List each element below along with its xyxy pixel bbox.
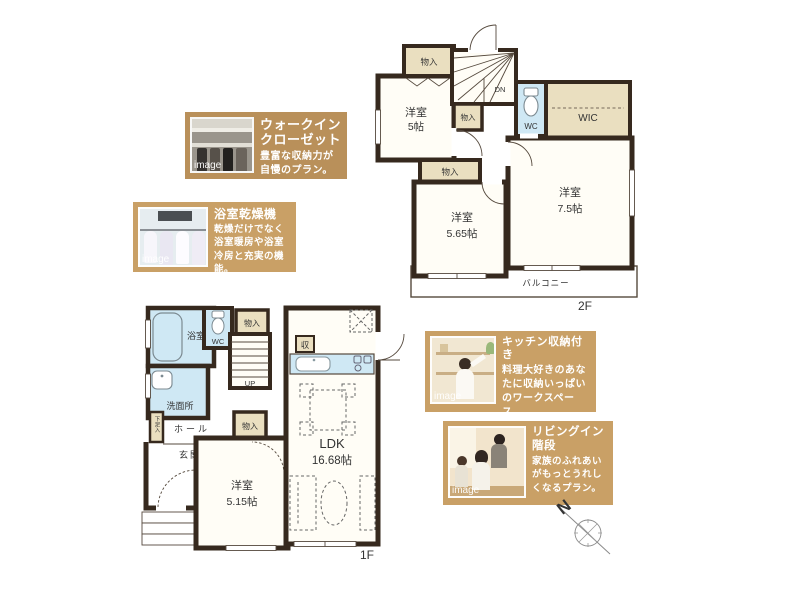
stairs-2f: DN xyxy=(452,25,516,104)
svg-text:WIC: WIC xyxy=(578,113,597,124)
photo-art xyxy=(192,231,205,265)
photo-art xyxy=(440,344,448,352)
toilet-icon xyxy=(524,88,538,116)
feature-desc: 乾燥だけでなく浴室暖房や浴室冷房と充実の機能。 xyxy=(214,223,291,276)
svg-text:洋室: 洋室 xyxy=(405,105,427,119)
image-watermark: image xyxy=(142,254,169,265)
stair-door-gap xyxy=(468,47,498,53)
stairs-dn-label: DN xyxy=(495,85,506,94)
svg-text:洋室: 洋室 xyxy=(559,185,581,199)
feature-desc: 家族のふれあいがもっとうれしくなるプラン。 xyxy=(532,455,608,495)
room-wc-2f: WC xyxy=(516,82,546,136)
image-watermark: image xyxy=(452,485,479,496)
photo-art xyxy=(236,148,247,173)
feature-box-walk-in-closet: image ウォークインクローゼット 豊富な収納力が自慢のプラン。 xyxy=(185,112,347,179)
compass-north-label: N xyxy=(553,496,574,519)
floor-label-2f: 2F xyxy=(578,299,592,313)
svg-text:WC: WC xyxy=(212,337,225,346)
photo-art xyxy=(192,128,252,132)
shoe-cabinet: 下足入 xyxy=(150,412,163,442)
svg-text:WC: WC xyxy=(524,122,538,131)
floor-plan-2f: バルコニー 洋室 5帖 物入 DN xyxy=(374,20,646,314)
closet-1f-top: 物入 xyxy=(236,310,268,334)
photo-art xyxy=(455,465,468,487)
photo-art xyxy=(176,231,189,264)
room-bedroom-515: 洋室 5.15帖 xyxy=(196,438,288,548)
svg-text:7.5帖: 7.5帖 xyxy=(557,202,583,215)
stairs-up-label: UP xyxy=(245,379,255,388)
feature-title: キッチン収納付き xyxy=(502,336,591,362)
photo-art xyxy=(223,148,233,172)
svg-text:洋室: 洋室 xyxy=(231,478,253,492)
svg-text:16.68帖: 16.68帖 xyxy=(312,453,352,467)
porch-steps xyxy=(142,512,196,545)
svg-text:LDK: LDK xyxy=(319,436,345,451)
svg-text:物入: 物入 xyxy=(420,57,438,67)
svg-text:物入: 物入 xyxy=(242,421,258,431)
room-wic: WIC xyxy=(546,82,630,138)
room-bedroom-565: 洋室 5.65帖 xyxy=(414,182,506,276)
feature-desc: 料理大好きのあなたに収納いっぱいのワークスペース。 xyxy=(502,364,591,420)
feature-photo-kitchen: image xyxy=(430,336,496,404)
feature-photo-laundry: image xyxy=(138,207,208,267)
kitchen-counter xyxy=(290,354,374,374)
floor-label-1f: 1F xyxy=(360,548,374,562)
feature-title: リビングイン階段 xyxy=(532,426,608,453)
kitchen-storage: 収 xyxy=(296,336,314,352)
feature-title: ウォークインクローゼット xyxy=(260,117,342,148)
hall-label: ホール xyxy=(174,424,210,434)
svg-text:物入: 物入 xyxy=(244,318,260,328)
image-watermark: image xyxy=(194,160,221,171)
photo-art xyxy=(192,119,252,128)
feature-title: 浴室乾燥機 xyxy=(214,207,291,221)
photo-art xyxy=(158,211,192,221)
photo-art xyxy=(192,143,252,147)
room-bedroom-75: 洋室 7.5帖 xyxy=(508,138,632,268)
feature-box-kitchen-storage: image キッチン収納付き 料理大好きのあなたに収納いっぱいのワークスペース。 xyxy=(425,331,596,412)
svg-text:物入: 物入 xyxy=(441,167,459,177)
photo-art xyxy=(486,342,495,354)
feature-photo-family: image xyxy=(448,426,526,498)
ldk-entry-door xyxy=(376,332,405,360)
floor-plan-1f: 浴室 WC 物入 UP xyxy=(138,296,448,566)
closet-2f-mid: 物入 xyxy=(454,104,482,130)
room-washroom: 洗面所 xyxy=(148,366,208,418)
svg-text:下足入: 下足入 xyxy=(154,416,161,433)
room-bedroom-5: 洋室 5帖 xyxy=(378,76,454,160)
floor-plan-flyer: バルコニー 洋室 5帖 物入 DN xyxy=(0,0,800,600)
svg-text:5.15帖: 5.15帖 xyxy=(227,495,258,508)
photo-art xyxy=(491,444,507,468)
svg-text:5.65帖: 5.65帖 xyxy=(447,227,478,240)
balcony-label: バルコニー xyxy=(522,278,569,288)
stairs-1f: UP xyxy=(230,334,270,388)
svg-text:洗面所: 洗面所 xyxy=(166,400,193,411)
photo-art xyxy=(470,354,486,367)
compass: N xyxy=(548,492,620,562)
toilet-icon xyxy=(212,311,224,334)
feature-photo-closet: image xyxy=(190,117,254,173)
svg-text:収: 収 xyxy=(301,340,310,350)
feature-desc: 豊富な収納力が自慢のプラン。 xyxy=(260,150,342,178)
image-watermark: image xyxy=(434,391,461,402)
room-wc-1f: WC xyxy=(204,308,232,348)
feature-box-bath-dryer: image 浴室乾燥機 乾燥だけでなく浴室暖房や浴室冷房と充実の機能。 xyxy=(133,202,296,272)
entrance: 玄関 xyxy=(146,442,201,511)
svg-text:5帖: 5帖 xyxy=(408,120,425,133)
svg-text:物入: 物入 xyxy=(461,112,476,122)
svg-text:洋室: 洋室 xyxy=(451,210,473,224)
